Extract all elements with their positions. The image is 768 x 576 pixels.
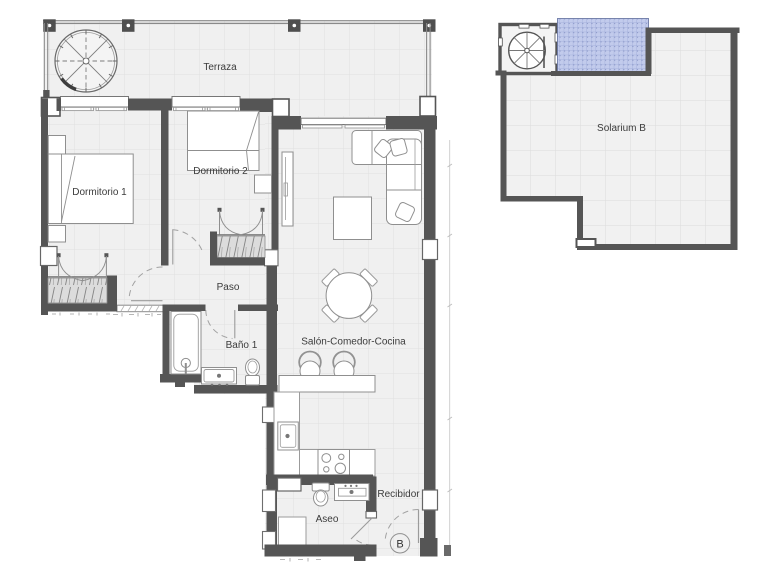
svg-text:Salón-Comedor-Cocina: Salón-Comedor-Cocina	[301, 337, 406, 348]
svg-text:Recibidor: Recibidor	[377, 489, 420, 500]
svg-text:Dormitorio 1: Dormitorio 1	[72, 187, 127, 198]
svg-text:Aseo: Aseo	[316, 514, 339, 525]
svg-text:B: B	[396, 538, 403, 550]
svg-text:Dormitorio 2: Dormitorio 2	[193, 166, 248, 177]
svg-text:Baño 1: Baño 1	[226, 340, 258, 351]
svg-text:Paso: Paso	[217, 282, 240, 293]
svg-text:Terraza: Terraza	[203, 62, 237, 73]
svg-text:Solarium B: Solarium B	[597, 123, 646, 134]
